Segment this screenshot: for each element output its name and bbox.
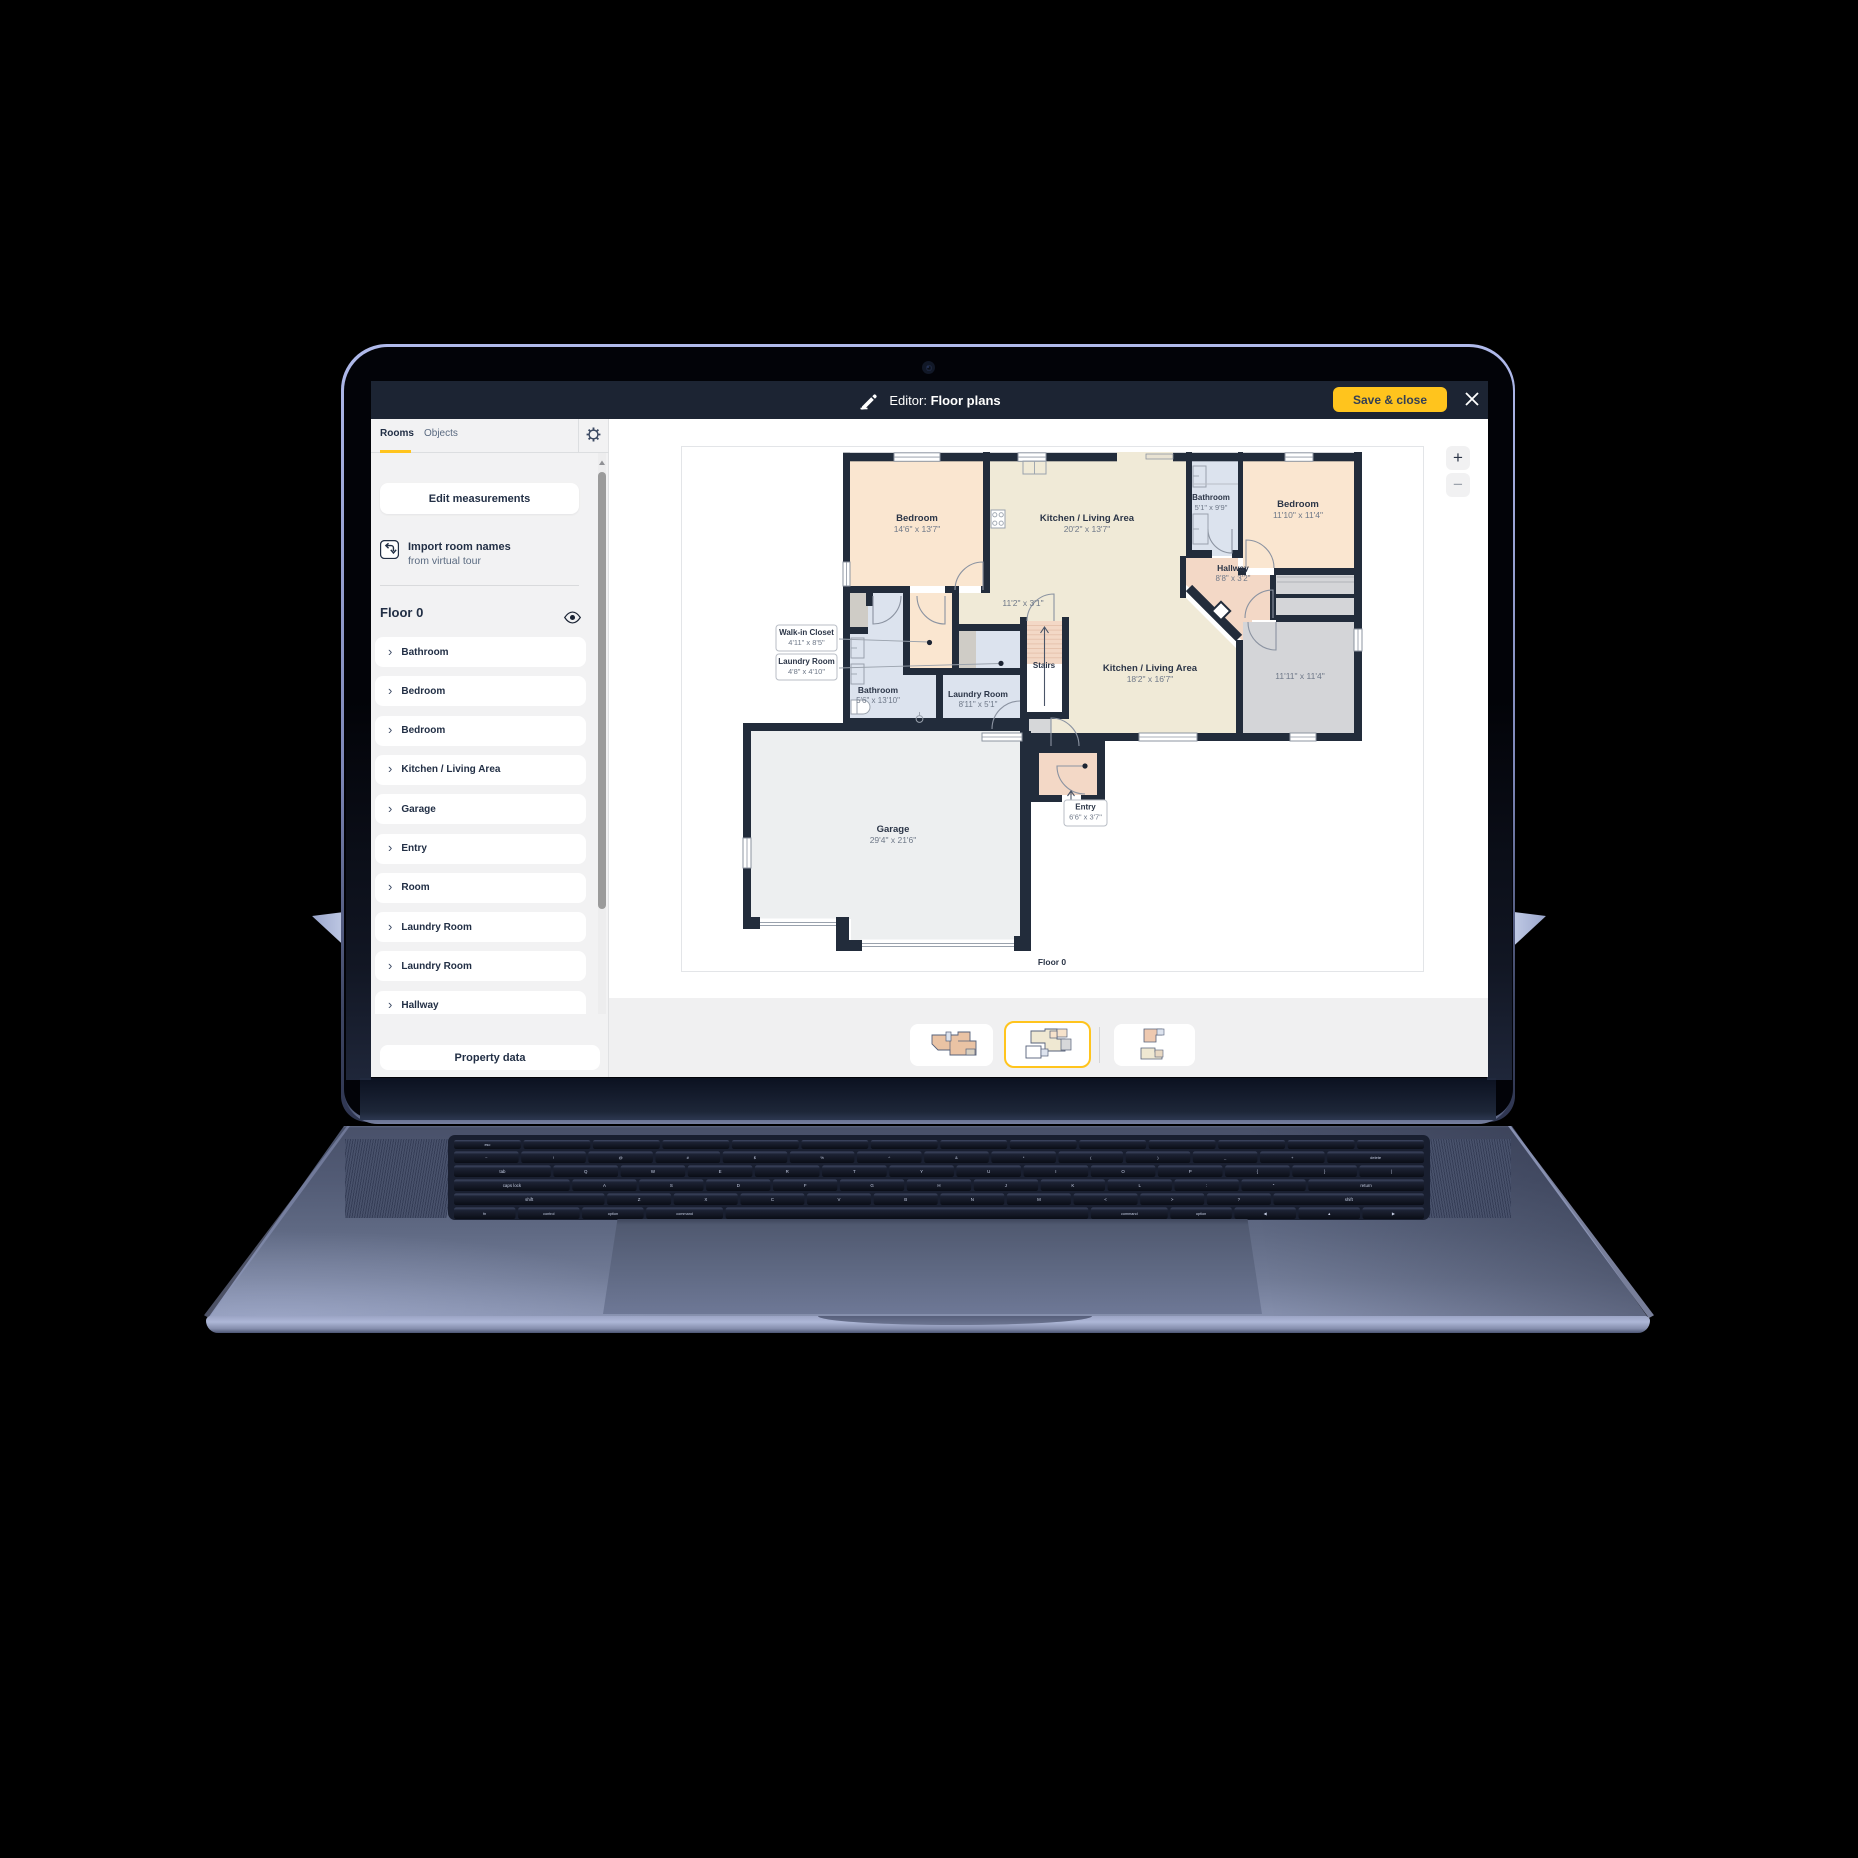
svg-text:command: command bbox=[676, 1212, 693, 1216]
svg-text:11'10" x 11'4": 11'10" x 11'4" bbox=[1273, 510, 1323, 520]
svg-text:I: I bbox=[1055, 1169, 1056, 1174]
svg-text:option: option bbox=[608, 1212, 618, 1216]
svg-text:▲: ▲ bbox=[1327, 1212, 1331, 1216]
svg-text:U: U bbox=[987, 1169, 990, 1174]
svg-text:|: | bbox=[1391, 1169, 1392, 1174]
svg-text:^: ^ bbox=[888, 1155, 890, 1160]
svg-text:return: return bbox=[1360, 1183, 1372, 1188]
svg-text:shift: shift bbox=[1345, 1197, 1354, 1202]
svg-text:option: option bbox=[1196, 1212, 1206, 1216]
svg-text:Kitchen / Living Area: Kitchen / Living Area bbox=[1040, 513, 1135, 524]
svg-text:tab: tab bbox=[499, 1169, 506, 1174]
svg-text:Stairs: Stairs bbox=[1033, 661, 1056, 670]
svg-text:Garage: Garage bbox=[877, 824, 910, 835]
svg-text:Entry: Entry bbox=[1075, 803, 1096, 812]
svg-text:F: F bbox=[804, 1183, 807, 1188]
svg-text:esc: esc bbox=[484, 1143, 490, 1147]
svg-text:P: P bbox=[1189, 1169, 1192, 1174]
svg-text:20'2" x 13'7": 20'2" x 13'7" bbox=[1064, 524, 1111, 534]
svg-text:Z: Z bbox=[638, 1197, 641, 1202]
svg-text::: : bbox=[1206, 1183, 1207, 1188]
svg-text:N: N bbox=[971, 1197, 974, 1202]
svg-text:caps lock: caps lock bbox=[503, 1183, 522, 1188]
svg-text:4'11" x 8'5": 4'11" x 8'5" bbox=[788, 638, 825, 647]
svg-text:G: G bbox=[870, 1183, 874, 1188]
svg-text:!: ! bbox=[553, 1155, 554, 1160]
svg-text:M: M bbox=[1037, 1197, 1041, 1202]
svg-text:E: E bbox=[719, 1169, 722, 1174]
svg-text:Bedroom: Bedroom bbox=[1277, 499, 1319, 510]
svg-text:14'6" x 13'7": 14'6" x 13'7" bbox=[894, 524, 941, 534]
svg-text:>: > bbox=[1171, 1197, 1174, 1202]
svg-text:Laundry Room: Laundry Room bbox=[778, 657, 834, 666]
svg-text:8'8" x 3'2": 8'8" x 3'2" bbox=[1216, 574, 1251, 583]
svg-text:11'2" x 3'1": 11'2" x 3'1" bbox=[1002, 598, 1043, 608]
svg-text:29'4" x 21'6": 29'4" x 21'6" bbox=[870, 835, 917, 845]
svg-text:H: H bbox=[937, 1183, 940, 1188]
svg-text:Kitchen / Living Area: Kitchen / Living Area bbox=[1103, 663, 1198, 674]
svg-text:Y: Y bbox=[920, 1169, 923, 1174]
svg-text:T: T bbox=[853, 1169, 856, 1174]
svg-text:18'2" x 16'7": 18'2" x 16'7" bbox=[1127, 674, 1174, 684]
svg-text:@: @ bbox=[619, 1155, 623, 1160]
svg-text:<: < bbox=[1104, 1197, 1107, 1202]
svg-text:R: R bbox=[786, 1169, 789, 1174]
svg-text:K: K bbox=[1071, 1183, 1074, 1188]
svg-text:Bathroom: Bathroom bbox=[858, 685, 899, 695]
svg-text:Q: Q bbox=[584, 1169, 588, 1174]
svg-text:A: A bbox=[603, 1183, 606, 1188]
svg-text:X: X bbox=[704, 1197, 707, 1202]
svg-text:Bedroom: Bedroom bbox=[896, 513, 938, 524]
svg-text:B: B bbox=[904, 1197, 907, 1202]
svg-text:&: & bbox=[955, 1155, 958, 1160]
svg-text:Laundry Room: Laundry Room bbox=[948, 689, 1008, 699]
svg-text:5'6" x 13'10": 5'6" x 13'10" bbox=[856, 696, 900, 705]
svg-text:control: control bbox=[543, 1212, 555, 1216]
svg-text:5'1" x 9'9": 5'1" x 9'9" bbox=[1195, 503, 1228, 512]
svg-text:shift: shift bbox=[525, 1197, 534, 1202]
svg-text:O: O bbox=[1121, 1169, 1125, 1174]
svg-text:delete: delete bbox=[1370, 1155, 1382, 1160]
svg-text:V: V bbox=[838, 1197, 841, 1202]
svg-text:fn: fn bbox=[483, 1212, 486, 1216]
svg-text:11'11" x 11'4": 11'11" x 11'4" bbox=[1275, 671, 1324, 681]
svg-text:Floor 0: Floor 0 bbox=[1038, 957, 1067, 967]
svg-text:J: J bbox=[1005, 1183, 1007, 1188]
svg-text:D: D bbox=[737, 1183, 740, 1188]
svg-text:6'6" x 3'7": 6'6" x 3'7" bbox=[1069, 813, 1102, 822]
svg-text:%: % bbox=[820, 1155, 824, 1160]
svg-text:4'8" x 4'10": 4'8" x 4'10" bbox=[788, 667, 825, 676]
svg-text:C: C bbox=[771, 1197, 774, 1202]
svg-text:Bathroom: Bathroom bbox=[1192, 493, 1230, 502]
svg-text:command: command bbox=[1121, 1212, 1138, 1216]
svg-text:S: S bbox=[670, 1183, 673, 1188]
svg-text:8'11" x 5'1": 8'11" x 5'1" bbox=[959, 700, 998, 709]
svg-text:Hallway: Hallway bbox=[1217, 563, 1249, 573]
svg-text:Walk-in Closet: Walk-in Closet bbox=[779, 628, 834, 637]
